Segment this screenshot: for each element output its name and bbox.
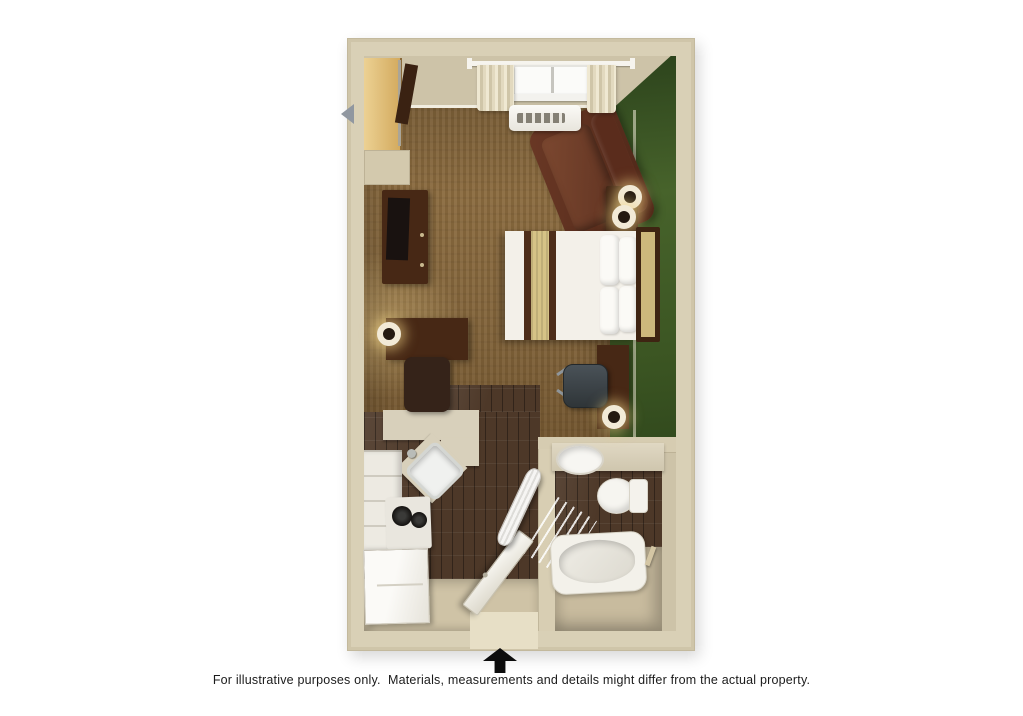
curtain (477, 65, 514, 111)
refrigerator-door-seam (377, 583, 423, 586)
faucet (407, 449, 416, 458)
floor-lamp (602, 405, 626, 429)
hallway-wood-floor (447, 385, 540, 412)
wardrobe-closet (364, 58, 402, 150)
toilet-tank (629, 479, 648, 513)
ac-vent-grille (517, 113, 565, 123)
bathroom-sink (556, 444, 604, 475)
pillow (600, 287, 619, 334)
floor-plan-image: For illustrative purposes only. Material… (0, 0, 1023, 716)
office-chair (563, 364, 608, 408)
pillow (619, 286, 637, 332)
disclaimer-caption: For illustrative purposes only. Material… (0, 673, 1023, 687)
curtain-rod-cap (630, 58, 635, 69)
dresser-knob (420, 233, 424, 237)
bed-runner-band (531, 231, 549, 340)
pillow (619, 237, 637, 284)
desk-chair (404, 357, 450, 412)
window-mullion (551, 67, 554, 93)
pillow (600, 235, 619, 285)
stove-burner (392, 506, 412, 526)
headboard-panel (641, 232, 655, 337)
dresser-knob (420, 263, 424, 267)
refrigerator (363, 548, 430, 625)
window-sill (508, 94, 594, 101)
stove-burner (411, 512, 427, 528)
entrance-arrow-icon (483, 648, 517, 673)
bed-runner-stripe (524, 231, 531, 340)
curtain-rod-cap (467, 58, 472, 69)
television (386, 198, 410, 261)
door-knob (482, 572, 489, 579)
table-lamp (612, 205, 636, 229)
entry-doorway (470, 612, 538, 649)
curtain (587, 65, 616, 113)
desk-lamp (377, 322, 401, 346)
bed-runner-stripe (549, 231, 556, 340)
closet-shelf (364, 150, 410, 185)
